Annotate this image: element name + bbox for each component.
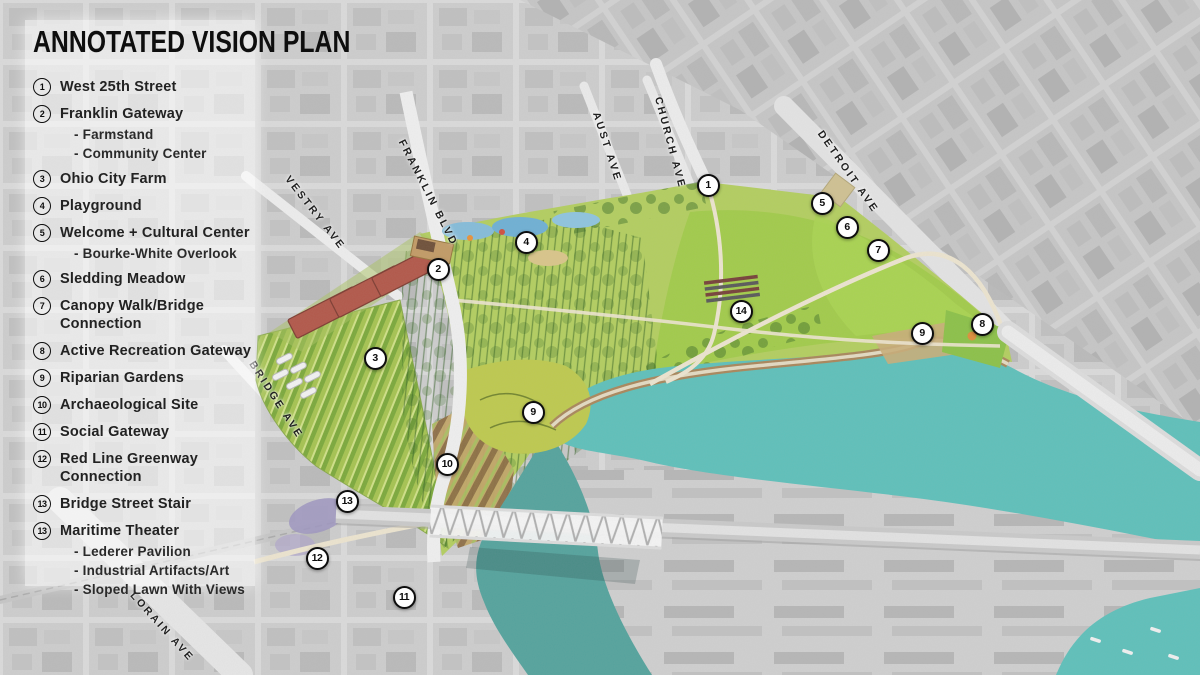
legend-sub-item: - Lederer Pavilion bbox=[74, 544, 245, 559]
legend-item-label: Welcome + Cultural Center bbox=[60, 224, 250, 242]
legend-item-body: Active Recreation Gateway bbox=[60, 342, 251, 360]
legend-item-number-badge: 1 bbox=[33, 78, 51, 96]
legend-item-number-badge: 9 bbox=[33, 369, 51, 387]
legend-item-body: Red Line Greenway Connection bbox=[60, 450, 255, 486]
legend-item: 9 Riparian Gardens bbox=[33, 369, 255, 387]
legend-item-number-badge: 7 bbox=[33, 297, 51, 315]
map-marker-10: 10 bbox=[436, 453, 459, 476]
map-marker-13: 13 bbox=[336, 490, 359, 513]
legend-item: 8 Active Recreation Gateway bbox=[33, 342, 255, 360]
legend-item-body: Canopy Walk/Bridge Connection bbox=[60, 297, 255, 333]
legend-item-body: Ohio City Farm bbox=[60, 170, 167, 188]
legend-item: 2 Franklin Gateway - Farmstand- Communit… bbox=[33, 105, 255, 161]
vision-plan-canvas: VESTRY AVEFRANKLIN BLVDAUST AVECHURCH AV… bbox=[0, 0, 1200, 675]
legend-sub-item: - Community Center bbox=[74, 146, 207, 161]
legend-item-label: Maritime Theater bbox=[60, 522, 245, 540]
legend-sub-item: - Sloped Lawn With Views bbox=[74, 582, 245, 597]
legend-item-label: Red Line Greenway Connection bbox=[60, 450, 255, 486]
legend-item: 1 West 25th Street bbox=[33, 78, 255, 96]
legend-item-number-badge: 6 bbox=[33, 270, 51, 288]
map-marker-9: 9 bbox=[911, 322, 934, 345]
legend-item: 6 Sledding Meadow bbox=[33, 270, 255, 288]
map-marker-11: 11 bbox=[393, 586, 416, 609]
legend-item-body: Riparian Gardens bbox=[60, 369, 184, 387]
legend-item-number-badge: 3 bbox=[33, 170, 51, 188]
legend-item-number-badge: 13 bbox=[33, 522, 51, 540]
legend-item-body: Bridge Street Stair bbox=[60, 495, 191, 513]
legend-item-label: Archaeological Site bbox=[60, 396, 198, 414]
legend-item-body: West 25th Street bbox=[60, 78, 177, 96]
legend-item-body: Sledding Meadow bbox=[60, 270, 185, 288]
map-marker-8: 8 bbox=[971, 313, 994, 336]
legend-item-label: Riparian Gardens bbox=[60, 369, 184, 387]
legend-item-body: Welcome + Cultural Center - Bourke-White… bbox=[60, 224, 250, 261]
map-marker-14: 14 bbox=[730, 300, 753, 323]
legend-item-label: Franklin Gateway bbox=[60, 105, 207, 123]
page-title: ANNOTATED VISION PLAN bbox=[33, 24, 350, 60]
legend-item: 5 Welcome + Cultural Center - Bourke-Whi… bbox=[33, 224, 255, 261]
legend-item-number-badge: 10 bbox=[33, 396, 51, 414]
legend-item: 13 Maritime Theater - Lederer Pavilion- … bbox=[33, 522, 255, 597]
legend-item-body: Franklin Gateway - Farmstand- Community … bbox=[60, 105, 207, 161]
map-marker-2: 2 bbox=[427, 258, 450, 281]
map-marker-1: 1 bbox=[697, 174, 720, 197]
legend-item-sublist: - Bourke-White Overlook bbox=[60, 246, 250, 261]
legend-item-sublist: - Lederer Pavilion- Industrial Artifacts… bbox=[60, 544, 245, 597]
legend-item-sublist: - Farmstand- Community Center bbox=[60, 127, 207, 161]
map-marker-4: 4 bbox=[515, 231, 538, 254]
legend-item-number-badge: 13 bbox=[33, 495, 51, 513]
legend-sub-item: - Farmstand bbox=[74, 127, 207, 142]
legend-item-number-badge: 12 bbox=[33, 450, 51, 468]
legend-item-label: Active Recreation Gateway bbox=[60, 342, 251, 360]
legend-item-label: Canopy Walk/Bridge Connection bbox=[60, 297, 255, 333]
legend-item-label: Bridge Street Stair bbox=[60, 495, 191, 513]
legend-item-label: Social Gateway bbox=[60, 423, 169, 441]
legend-item-number-badge: 8 bbox=[33, 342, 51, 360]
map-marker-3: 3 bbox=[364, 347, 387, 370]
legend-item: 13 Bridge Street Stair bbox=[33, 495, 255, 513]
legend-item-label: Sledding Meadow bbox=[60, 270, 185, 288]
map-marker-9: 9 bbox=[522, 401, 545, 424]
map-marker-12: 12 bbox=[306, 547, 329, 570]
legend-item: 11 Social Gateway bbox=[33, 423, 255, 441]
legend-item-number-badge: 11 bbox=[33, 423, 51, 441]
legend-item: 12 Red Line Greenway Connection bbox=[33, 450, 255, 486]
map-marker-6: 6 bbox=[836, 216, 859, 239]
legend-item: 3 Ohio City Farm bbox=[33, 170, 255, 188]
legend-item-body: Playground bbox=[60, 197, 142, 215]
legend-item-label: Ohio City Farm bbox=[60, 170, 167, 188]
legend-item-label: Playground bbox=[60, 197, 142, 215]
legend-item-body: Social Gateway bbox=[60, 423, 169, 441]
legend-item-label: West 25th Street bbox=[60, 78, 177, 96]
legend-item: 10 Archaeological Site bbox=[33, 396, 255, 414]
legend-item-body: Archaeological Site bbox=[60, 396, 198, 414]
legend-item-body: Maritime Theater - Lederer Pavilion- Ind… bbox=[60, 522, 245, 597]
legend-sub-item: - Bourke-White Overlook bbox=[74, 246, 250, 261]
legend-item: 7 Canopy Walk/Bridge Connection bbox=[33, 297, 255, 333]
legend-panel: 1 West 25th Street 2 Franklin Gateway - … bbox=[25, 20, 255, 586]
legend-list: 1 West 25th Street 2 Franklin Gateway - … bbox=[25, 20, 255, 597]
legend-item-number-badge: 4 bbox=[33, 197, 51, 215]
legend-sub-item: - Industrial Artifacts/Art bbox=[74, 563, 245, 578]
legend-item-number-badge: 2 bbox=[33, 105, 51, 123]
legend-item-number-badge: 5 bbox=[33, 224, 51, 242]
map-marker-7: 7 bbox=[867, 239, 890, 262]
map-marker-5: 5 bbox=[811, 192, 834, 215]
legend-item: 4 Playground bbox=[33, 197, 255, 215]
